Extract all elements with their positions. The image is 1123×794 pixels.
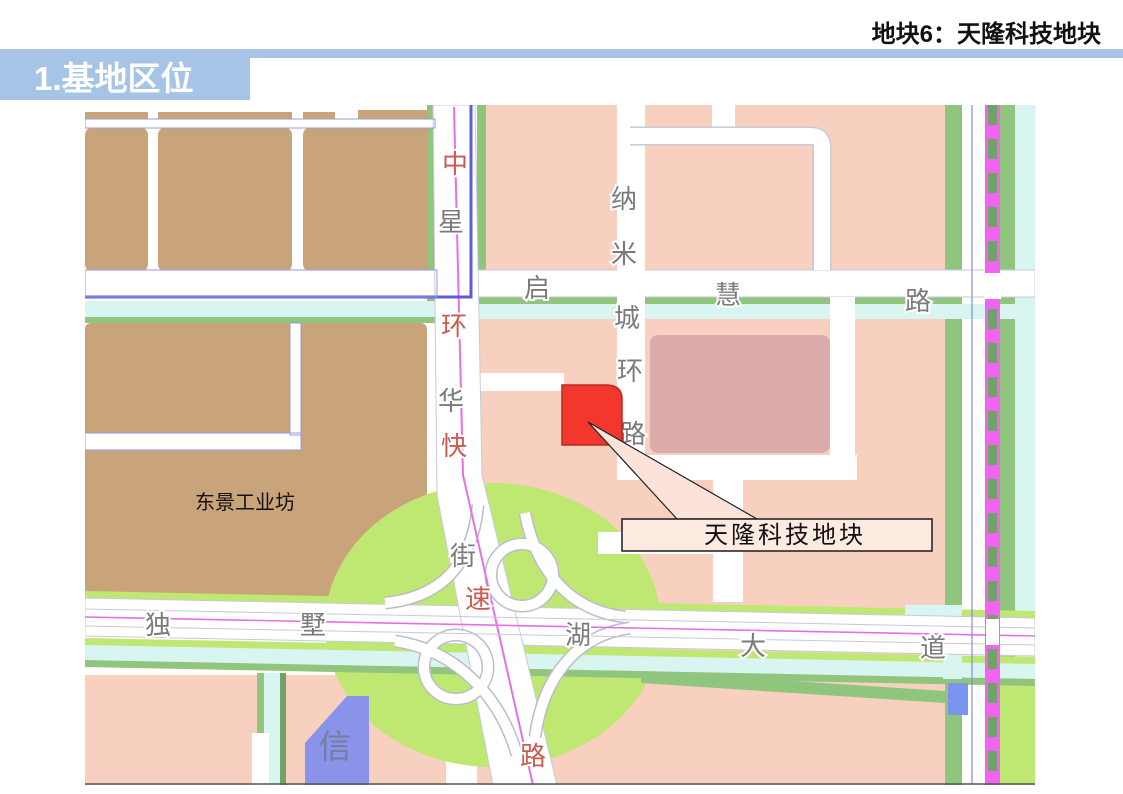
svg-text:启: 启	[524, 273, 550, 303]
svg-text:城: 城	[614, 303, 640, 333]
header-band	[0, 49, 1123, 58]
svg-text:慧: 慧	[715, 280, 741, 310]
svg-text:中: 中	[442, 149, 468, 179]
svg-text:快: 快	[441, 431, 467, 461]
svg-text:华: 华	[438, 386, 464, 416]
svg-text:路: 路	[520, 741, 546, 771]
blue-parcel-label: 信	[319, 728, 352, 765]
svg-text:米: 米	[611, 239, 637, 269]
svg-text:纳: 纳	[611, 184, 637, 214]
slide-title: 地块6：天隆科技地块	[872, 14, 1101, 49]
section-banner: 1.基地区位	[0, 58, 250, 100]
callout-label: 天隆科技地块	[704, 522, 866, 549]
nano-city-block	[650, 335, 830, 453]
svg-text:速: 速	[465, 584, 491, 614]
svg-text:街: 街	[450, 541, 476, 571]
svg-text:独: 独	[145, 610, 171, 640]
location-map: 中 星 环 华 快 街 速 路 纳 米 城 环 路 启 慧 路 独 墅 湖 大 …	[85, 105, 1035, 785]
svg-text:道: 道	[920, 633, 946, 663]
map-svg: 中 星 环 华 快 街 速 路 纳 米 城 环 路 启 慧 路 独 墅 湖 大 …	[85, 105, 1035, 785]
svg-text:星: 星	[438, 207, 464, 237]
svg-text:环: 环	[441, 311, 467, 341]
svg-text:大: 大	[740, 631, 766, 661]
svg-text:环: 环	[617, 356, 643, 386]
svg-text:路: 路	[905, 286, 931, 316]
svg-text:墅: 墅	[300, 610, 326, 640]
industrial-area-label: 东景工业坊	[195, 491, 295, 514]
slide: 地块6：天隆科技地块 1.基地区位	[0, 0, 1123, 794]
svg-text:湖: 湖	[565, 620, 591, 650]
